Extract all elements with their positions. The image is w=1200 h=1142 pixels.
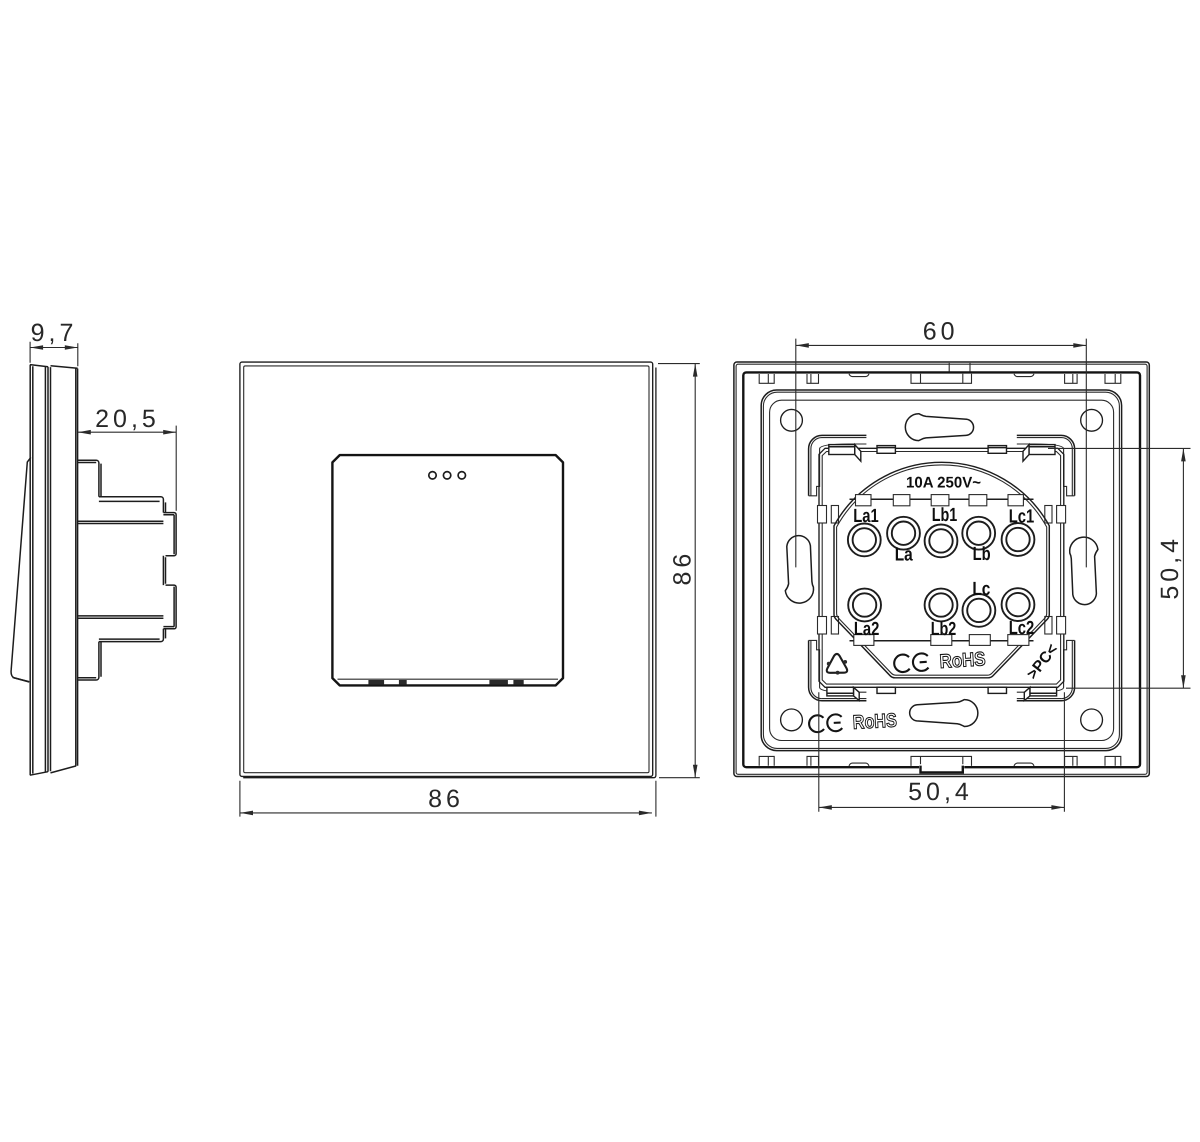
svg-text:20,5: 20,5 (95, 405, 160, 433)
svg-text:Lb2: Lb2 (931, 619, 957, 640)
svg-text:La2: La2 (854, 619, 880, 640)
svg-text:Lc1: Lc1 (1009, 507, 1035, 528)
svg-text:86: 86 (428, 785, 464, 813)
svg-text:Lc2: Lc2 (1009, 618, 1035, 639)
svg-text:La: La (895, 545, 913, 566)
svg-text:RoHS: RoHS (852, 710, 897, 734)
svg-text:60: 60 (923, 318, 959, 346)
svg-text:86: 86 (668, 550, 696, 586)
svg-text:RoHS: RoHS (939, 648, 986, 673)
svg-text:Lb: Lb (973, 544, 991, 565)
svg-text:9,7: 9,7 (31, 319, 78, 347)
svg-text:50,4: 50,4 (908, 778, 973, 806)
svg-text:10A 250V~: 10A 250V~ (906, 475, 981, 492)
svg-text:La1: La1 (853, 506, 879, 527)
svg-text:Lc: Lc (972, 579, 990, 600)
svg-text:50,4: 50,4 (1156, 535, 1184, 600)
svg-text:Lb1: Lb1 (932, 505, 958, 526)
